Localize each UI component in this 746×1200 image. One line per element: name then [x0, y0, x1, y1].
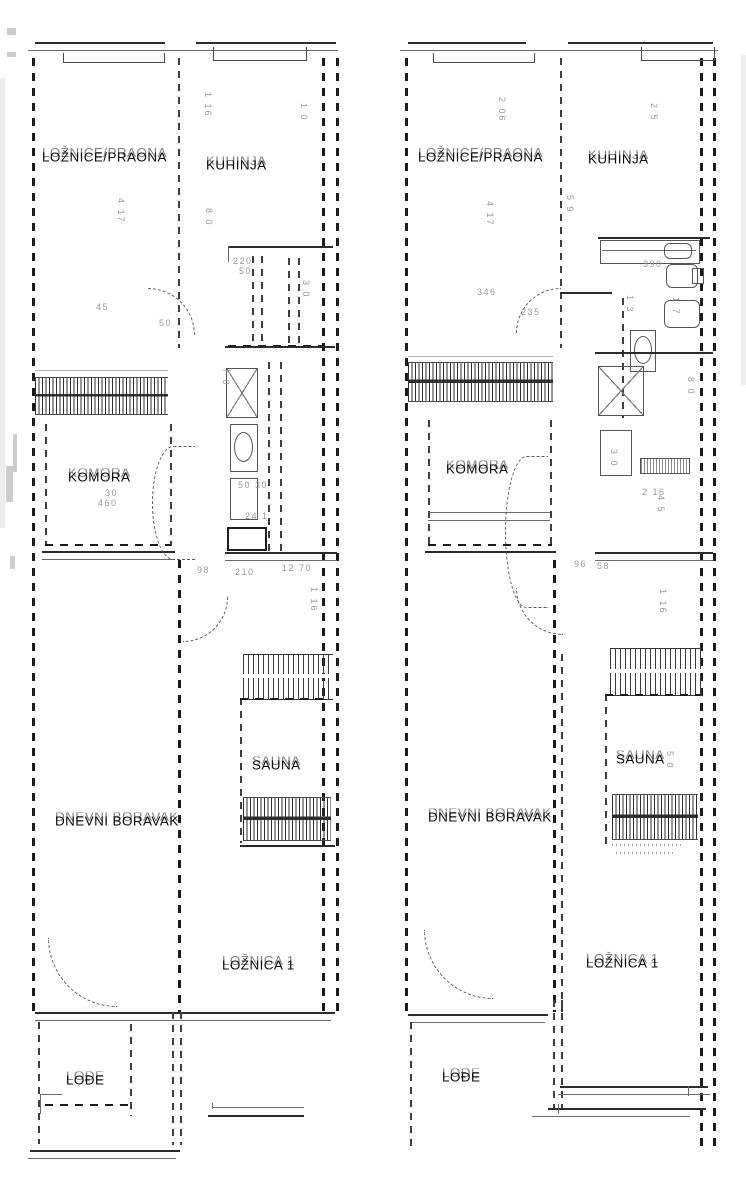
stair-strip	[610, 648, 702, 696]
wall-segment	[595, 560, 713, 561]
door-arc	[152, 446, 195, 560]
dimension-text: 96	[574, 559, 587, 569]
wall-segment	[605, 694, 700, 696]
line	[408, 356, 553, 357]
dimension-text: 3 0	[609, 449, 619, 468]
wall-segment	[568, 42, 713, 44]
window-sill	[641, 47, 715, 61]
dimension-text: 8 0	[204, 208, 214, 227]
balcony-rail	[548, 1108, 706, 1110]
wall-segment	[560, 292, 612, 294]
dimension-text: 4 5	[656, 495, 666, 514]
rail-tick	[558, 1104, 559, 1114]
dimension-text: 5 9	[565, 195, 575, 214]
scan-smear	[741, 55, 746, 385]
wall-segment	[700, 58, 703, 1152]
door-arc	[516, 588, 563, 635]
wall-segment	[228, 246, 229, 262]
dimension-text: 58	[597, 561, 610, 571]
scan-mark	[10, 556, 15, 569]
dimension-text: 1 16	[309, 587, 319, 613]
door-arc	[48, 938, 117, 1007]
dimension-text: 45	[96, 302, 109, 312]
radiator-fixture	[640, 458, 690, 474]
wall-segment	[280, 362, 282, 552]
balcony-rail	[560, 1086, 708, 1088]
room-label-pantry: KOMORA	[68, 470, 130, 484]
dimension-text: 50	[159, 318, 172, 328]
wall-segment	[40, 1094, 41, 1114]
stair-strip	[243, 654, 333, 700]
wall-segment	[240, 845, 335, 847]
window-sill-tick	[212, 1103, 213, 1109]
wall-segment	[561, 1000, 563, 1108]
wall-segment	[240, 698, 242, 843]
wall-segment	[298, 258, 300, 343]
scan-smear	[0, 78, 5, 528]
dimension-text: 460	[98, 498, 118, 508]
room-label-pantry: KOMORA	[446, 462, 508, 476]
window-sill	[433, 53, 535, 63]
wall-segment	[550, 420, 552, 546]
wall-segment	[35, 1020, 331, 1021]
wall-segment	[38, 1022, 40, 1144]
wall-segment	[180, 1012, 182, 1145]
wall-segment	[196, 42, 336, 44]
wall-segment	[336, 58, 339, 1012]
wall-segment	[408, 42, 526, 44]
wall-segment	[322, 58, 325, 1012]
wall-segment	[45, 544, 171, 546]
balcony-rail	[532, 1116, 690, 1117]
dotted-line	[616, 852, 676, 854]
dimension-text: 1 3	[625, 295, 635, 314]
wall-segment	[45, 424, 47, 546]
window-sill	[213, 47, 307, 61]
fixture-box	[227, 527, 267, 551]
dimension-text: 2 5	[649, 103, 659, 122]
dimension-text: 5 0	[665, 751, 675, 770]
room-label-bedroom-laundry: LOŽNICE/PRAONA	[42, 150, 167, 164]
door-arc	[505, 456, 548, 608]
line	[35, 370, 168, 371]
dimension-text: 8 0	[686, 377, 696, 396]
dimension-text: 24 1	[245, 511, 269, 521]
door-arc	[183, 597, 228, 642]
room-label-bedroom1: LOŽNICA 1	[222, 958, 295, 972]
room-label-bedroom-laundry: LOŽNICE/PRAONA	[418, 150, 543, 164]
dimension-text: 30	[105, 488, 118, 498]
wall-segment	[408, 1014, 548, 1016]
scan-mark	[13, 434, 17, 472]
hatch-band-wardrobe	[35, 377, 168, 415]
wall-segment	[553, 1000, 555, 1108]
rail-tick	[688, 1086, 689, 1096]
fixture-box	[692, 268, 704, 284]
dimension-text: 4 17	[116, 198, 126, 224]
wall-segment	[252, 256, 254, 346]
room-label-living: DNEVNI BORAVAK	[428, 810, 552, 824]
room-label-sauna: SAUNA	[252, 758, 301, 772]
dimension-text: 98	[197, 565, 210, 575]
wall-segment	[225, 552, 337, 554]
wall-segment	[225, 346, 335, 348]
scan-mark	[7, 52, 16, 57]
scan-mark	[6, 466, 13, 502]
wall-segment	[35, 1012, 335, 1014]
dimension-text: 390	[643, 259, 663, 269]
room-label-kitchen: KUHINJA	[206, 158, 267, 172]
room-label-kitchen: KUHINJA	[588, 152, 649, 166]
dimension-text: 1 16	[203, 92, 213, 118]
wall-segment	[130, 1024, 132, 1116]
hatch-band-bench	[612, 794, 698, 840]
wall-segment	[45, 1104, 131, 1106]
wall-segment	[605, 694, 607, 844]
hatch-band-wardrobe	[408, 362, 553, 402]
dimension-text: 1 16	[658, 589, 668, 615]
dimension-text: 2 06	[497, 97, 507, 123]
wall-segment	[428, 420, 430, 546]
wall-segment	[42, 559, 175, 560]
room-label-loggia: LOĐE	[442, 1070, 480, 1084]
wall-segment	[598, 237, 710, 239]
dotted-line	[612, 844, 684, 846]
dimension-text: 346	[477, 287, 497, 297]
dimension-text: 235	[521, 307, 541, 317]
dimension-text: 1 7	[671, 297, 681, 316]
window-sill	[208, 1115, 304, 1117]
wall-segment	[288, 258, 290, 343]
toilet-bowl	[234, 432, 253, 462]
wall-segment	[268, 362, 270, 552]
wall-segment	[28, 1158, 176, 1159]
sink-fixture	[664, 300, 700, 328]
room-label-loggia: LOĐE	[66, 1073, 104, 1087]
wall-segment	[261, 256, 263, 346]
wall-segment	[410, 1022, 412, 1147]
toilet-bowl	[634, 336, 652, 364]
dimension-text: 1 0	[299, 103, 309, 122]
dimension-text: 4 17	[485, 201, 495, 227]
dimension-text: 50 30	[238, 480, 268, 490]
room-label-sauna: SAUNA	[616, 752, 665, 766]
wall-segment	[412, 1022, 545, 1023]
wall-segment	[172, 1012, 174, 1145]
scan-mark	[7, 28, 16, 35]
wall-segment	[713, 58, 716, 1152]
dimension-text: 50	[239, 266, 252, 276]
wall-segment	[30, 1150, 180, 1152]
wall-segment	[32, 58, 35, 1012]
dimension-text: 3 0	[301, 280, 311, 299]
floor-plan-canvas: LOŽNICE/PRAONA KUHINJA KOMORA SAUNA DNEV…	[0, 0, 746, 1200]
window-sill	[212, 1107, 304, 1108]
window-sill	[63, 53, 165, 63]
wall-segment	[405, 58, 408, 1012]
wall-segment	[595, 352, 713, 354]
wall-segment	[561, 654, 563, 1012]
dimension-text: 210	[235, 567, 255, 577]
wall-segment	[595, 552, 713, 554]
wall-segment	[178, 560, 181, 1012]
wall-segment	[35, 42, 165, 44]
wall-segment	[42, 551, 175, 553]
shower-fixture	[598, 366, 644, 416]
hatch-band-bench	[243, 797, 331, 841]
dimension-text: 7 0	[221, 368, 231, 387]
wall-segment	[225, 560, 337, 561]
wall-segment	[228, 246, 333, 248]
wall-segment	[240, 698, 325, 700]
dimension-text: 12 70	[282, 563, 312, 573]
wall-segment	[40, 1094, 62, 1095]
room-label-bedroom1: LOŽNICA 1	[586, 956, 659, 970]
room-label-living: DNEVNI BORAVAK	[55, 814, 179, 828]
door-arc	[424, 930, 493, 999]
dimension-text: 220	[233, 256, 253, 266]
sink-fixture	[664, 243, 692, 259]
